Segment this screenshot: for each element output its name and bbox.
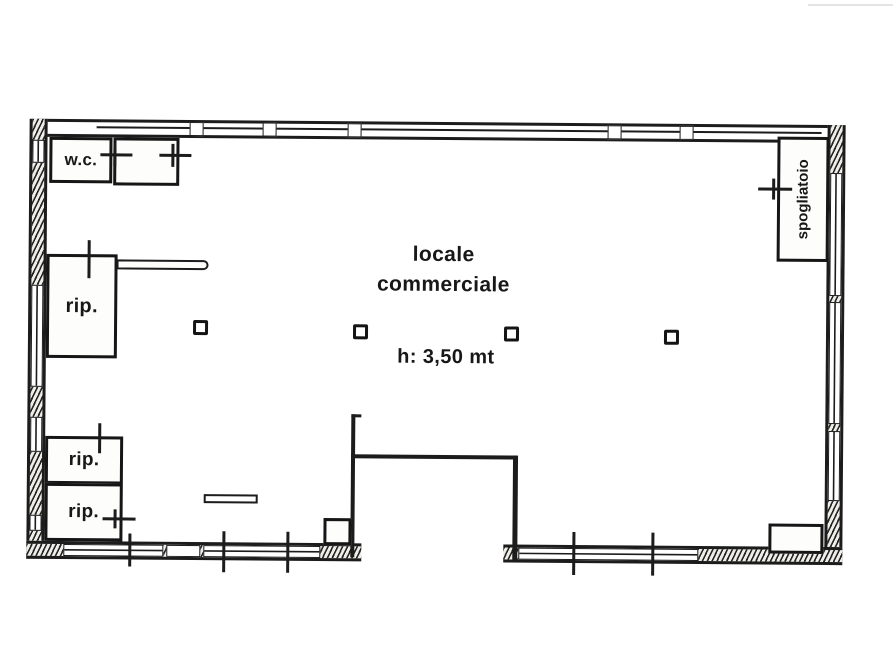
window-left-2 [31, 285, 44, 387]
main-room-label-line2: commerciale [328, 269, 558, 301]
notch-wall-left-cap [351, 414, 361, 417]
window-tick-5 [651, 533, 654, 576]
counter-fixture [204, 494, 258, 503]
door-marker-wc-tick [113, 143, 116, 166]
window-tick-2 [222, 531, 225, 572]
partition-arm [117, 259, 209, 270]
corner-fixture [768, 524, 823, 554]
floor-plan-scan: w.c. rip. rip. rip. spogliatoio [0, 0, 893, 670]
main-room-label: locale commerciale [328, 239, 558, 301]
room-anteroom [113, 137, 179, 186]
pillar-3 [504, 326, 519, 341]
room-wc-label: w.c. [64, 150, 97, 170]
room-storage-1-label: rip. [65, 295, 98, 318]
pillar-4 [664, 330, 679, 345]
window-right-2 [828, 302, 841, 424]
room-storage-2-label: rip. [69, 449, 100, 471]
window-left-1 [32, 140, 44, 163]
window-right-1 [829, 173, 842, 296]
room-storage-2: rip. [45, 436, 123, 485]
pillar-1 [193, 320, 208, 335]
window-bottom-2 [203, 545, 320, 558]
door-marker-changing-tick [772, 179, 775, 200]
window-mullion [190, 122, 204, 136]
ceiling-height-note: h: 3,50 mt [346, 345, 546, 370]
door-marker-storage-3-tick [113, 509, 116, 528]
notch-wall-top [351, 454, 517, 459]
notch-fixture [323, 518, 351, 545]
room-changing-label: spogliatoio [794, 159, 812, 239]
window-left-4 [29, 515, 41, 531]
window-tick-3 [286, 532, 289, 573]
window-bottom-3 [518, 548, 698, 561]
window-tick-4 [572, 532, 575, 575]
pillar-2 [353, 324, 368, 339]
window-tick-1 [128, 534, 131, 567]
floor-plan-drawing: w.c. rip. rip. rip. spogliatoio [0, 0, 893, 670]
window-bottom-1 [63, 544, 163, 557]
door-marker-anteroom [159, 154, 191, 157]
window-mullion [348, 123, 362, 137]
window-mullion [680, 126, 694, 140]
door-marker-storage-1 [87, 240, 90, 278]
room-storage-1: rip. [46, 254, 118, 359]
door-marker-storage-2 [98, 423, 101, 453]
door-opening-bottom [166, 545, 200, 557]
window-right-3 [828, 431, 841, 501]
door-marker-storage-3 [103, 517, 136, 520]
room-storage-3: rip. [44, 483, 122, 542]
room-changing: spogliatoio [777, 137, 830, 262]
window-mullion [263, 123, 277, 137]
notch-wall-right [512, 456, 518, 562]
window-mullion [608, 125, 622, 139]
door-marker-anteroom-tick [171, 144, 174, 167]
window-left-3 [30, 417, 42, 452]
room-storage-3-label: rip. [68, 501, 99, 523]
room-wc: w.c. [49, 137, 112, 183]
main-room-label-line1: locale [329, 239, 559, 271]
